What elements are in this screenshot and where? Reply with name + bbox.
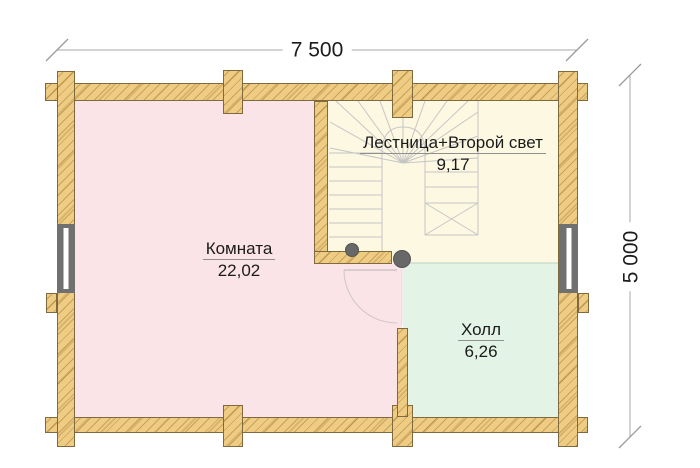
room-name-lestnitsa: Лестница+Второй свет [360, 133, 546, 154]
window-right [559, 224, 578, 293]
stair-post-large [393, 250, 411, 268]
plan-linework [0, 0, 700, 468]
door-symbol [344, 266, 402, 325]
stair-break-mark [425, 203, 478, 235]
label-holl: Холл 6,26 [431, 320, 531, 362]
room-area-holl: 6,26 [464, 341, 497, 362]
window-left [57, 224, 75, 293]
stair-post-small [345, 243, 359, 257]
log-end-bottom-1 [223, 405, 243, 447]
log-end-left-mid [46, 293, 57, 313]
room-area-lestnitsa: 9,17 [436, 154, 469, 175]
room-name-komnata: Комната [203, 239, 276, 260]
label-lestnitsa: Лестница+Второй свет 9,17 [337, 133, 569, 175]
label-komnata: Комната 22,02 [159, 239, 319, 281]
dimension-width: 7 500 [283, 39, 352, 62]
floor-plan: Комната 22,02 Лестница+Второй свет 9,17 … [0, 0, 700, 468]
dimension-height: 5 000 [620, 223, 643, 292]
window-right-glass [566, 228, 571, 289]
log-end-top-1 [223, 70, 243, 114]
door-swing-arc [344, 270, 397, 323]
wall-bottom [45, 417, 588, 433]
log-end-right-mid [578, 293, 589, 313]
wall-top [45, 83, 588, 101]
room-area-komnata: 22,02 [218, 260, 261, 281]
log-end-top-2 [392, 70, 413, 118]
staircase-drawing [329, 101, 478, 251]
wall-room-divider [397, 328, 408, 417]
room-name-holl: Холл [458, 320, 504, 341]
window-left-glass [64, 228, 69, 289]
